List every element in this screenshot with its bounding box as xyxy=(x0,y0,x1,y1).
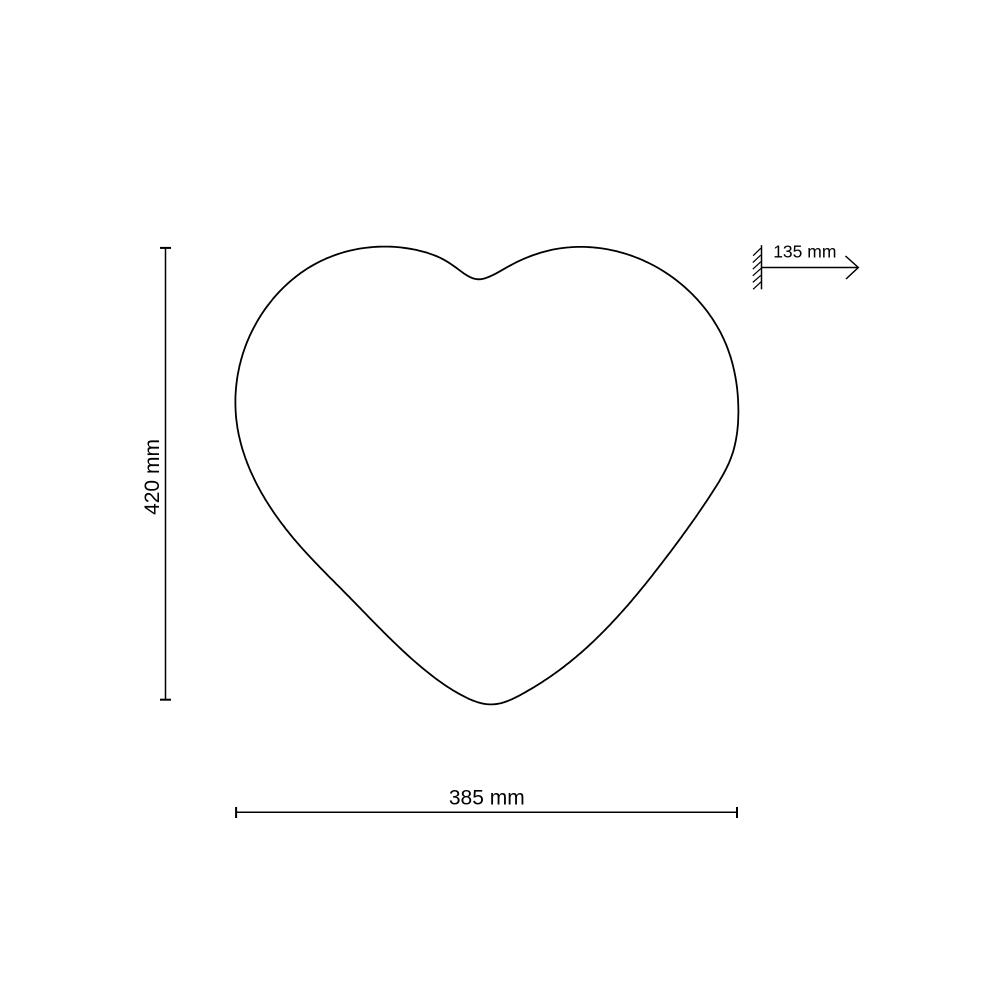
svg-text:385 mm: 385 mm xyxy=(449,787,525,810)
svg-text:135 mm: 135 mm xyxy=(773,242,836,262)
svg-text:420 mm: 420 mm xyxy=(141,439,164,515)
